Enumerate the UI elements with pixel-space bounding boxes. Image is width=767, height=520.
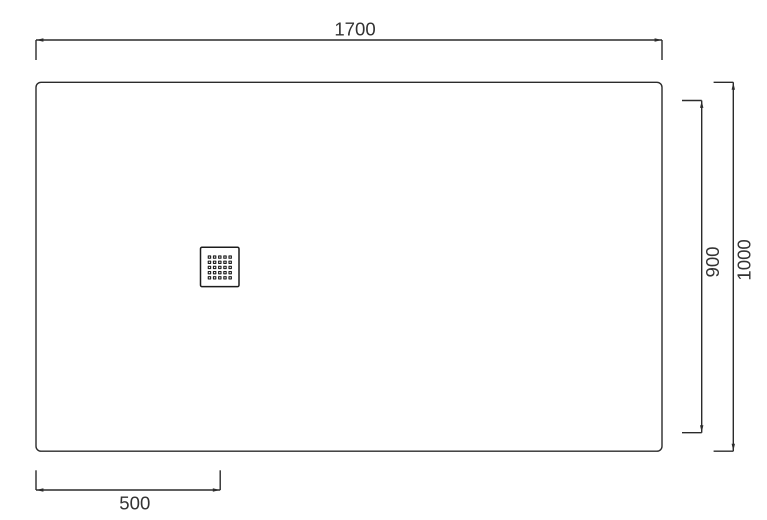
svg-text:900: 900	[702, 246, 723, 277]
svg-text:1000: 1000	[734, 239, 755, 280]
svg-text:1700: 1700	[334, 19, 375, 40]
svg-text:500: 500	[119, 493, 150, 514]
